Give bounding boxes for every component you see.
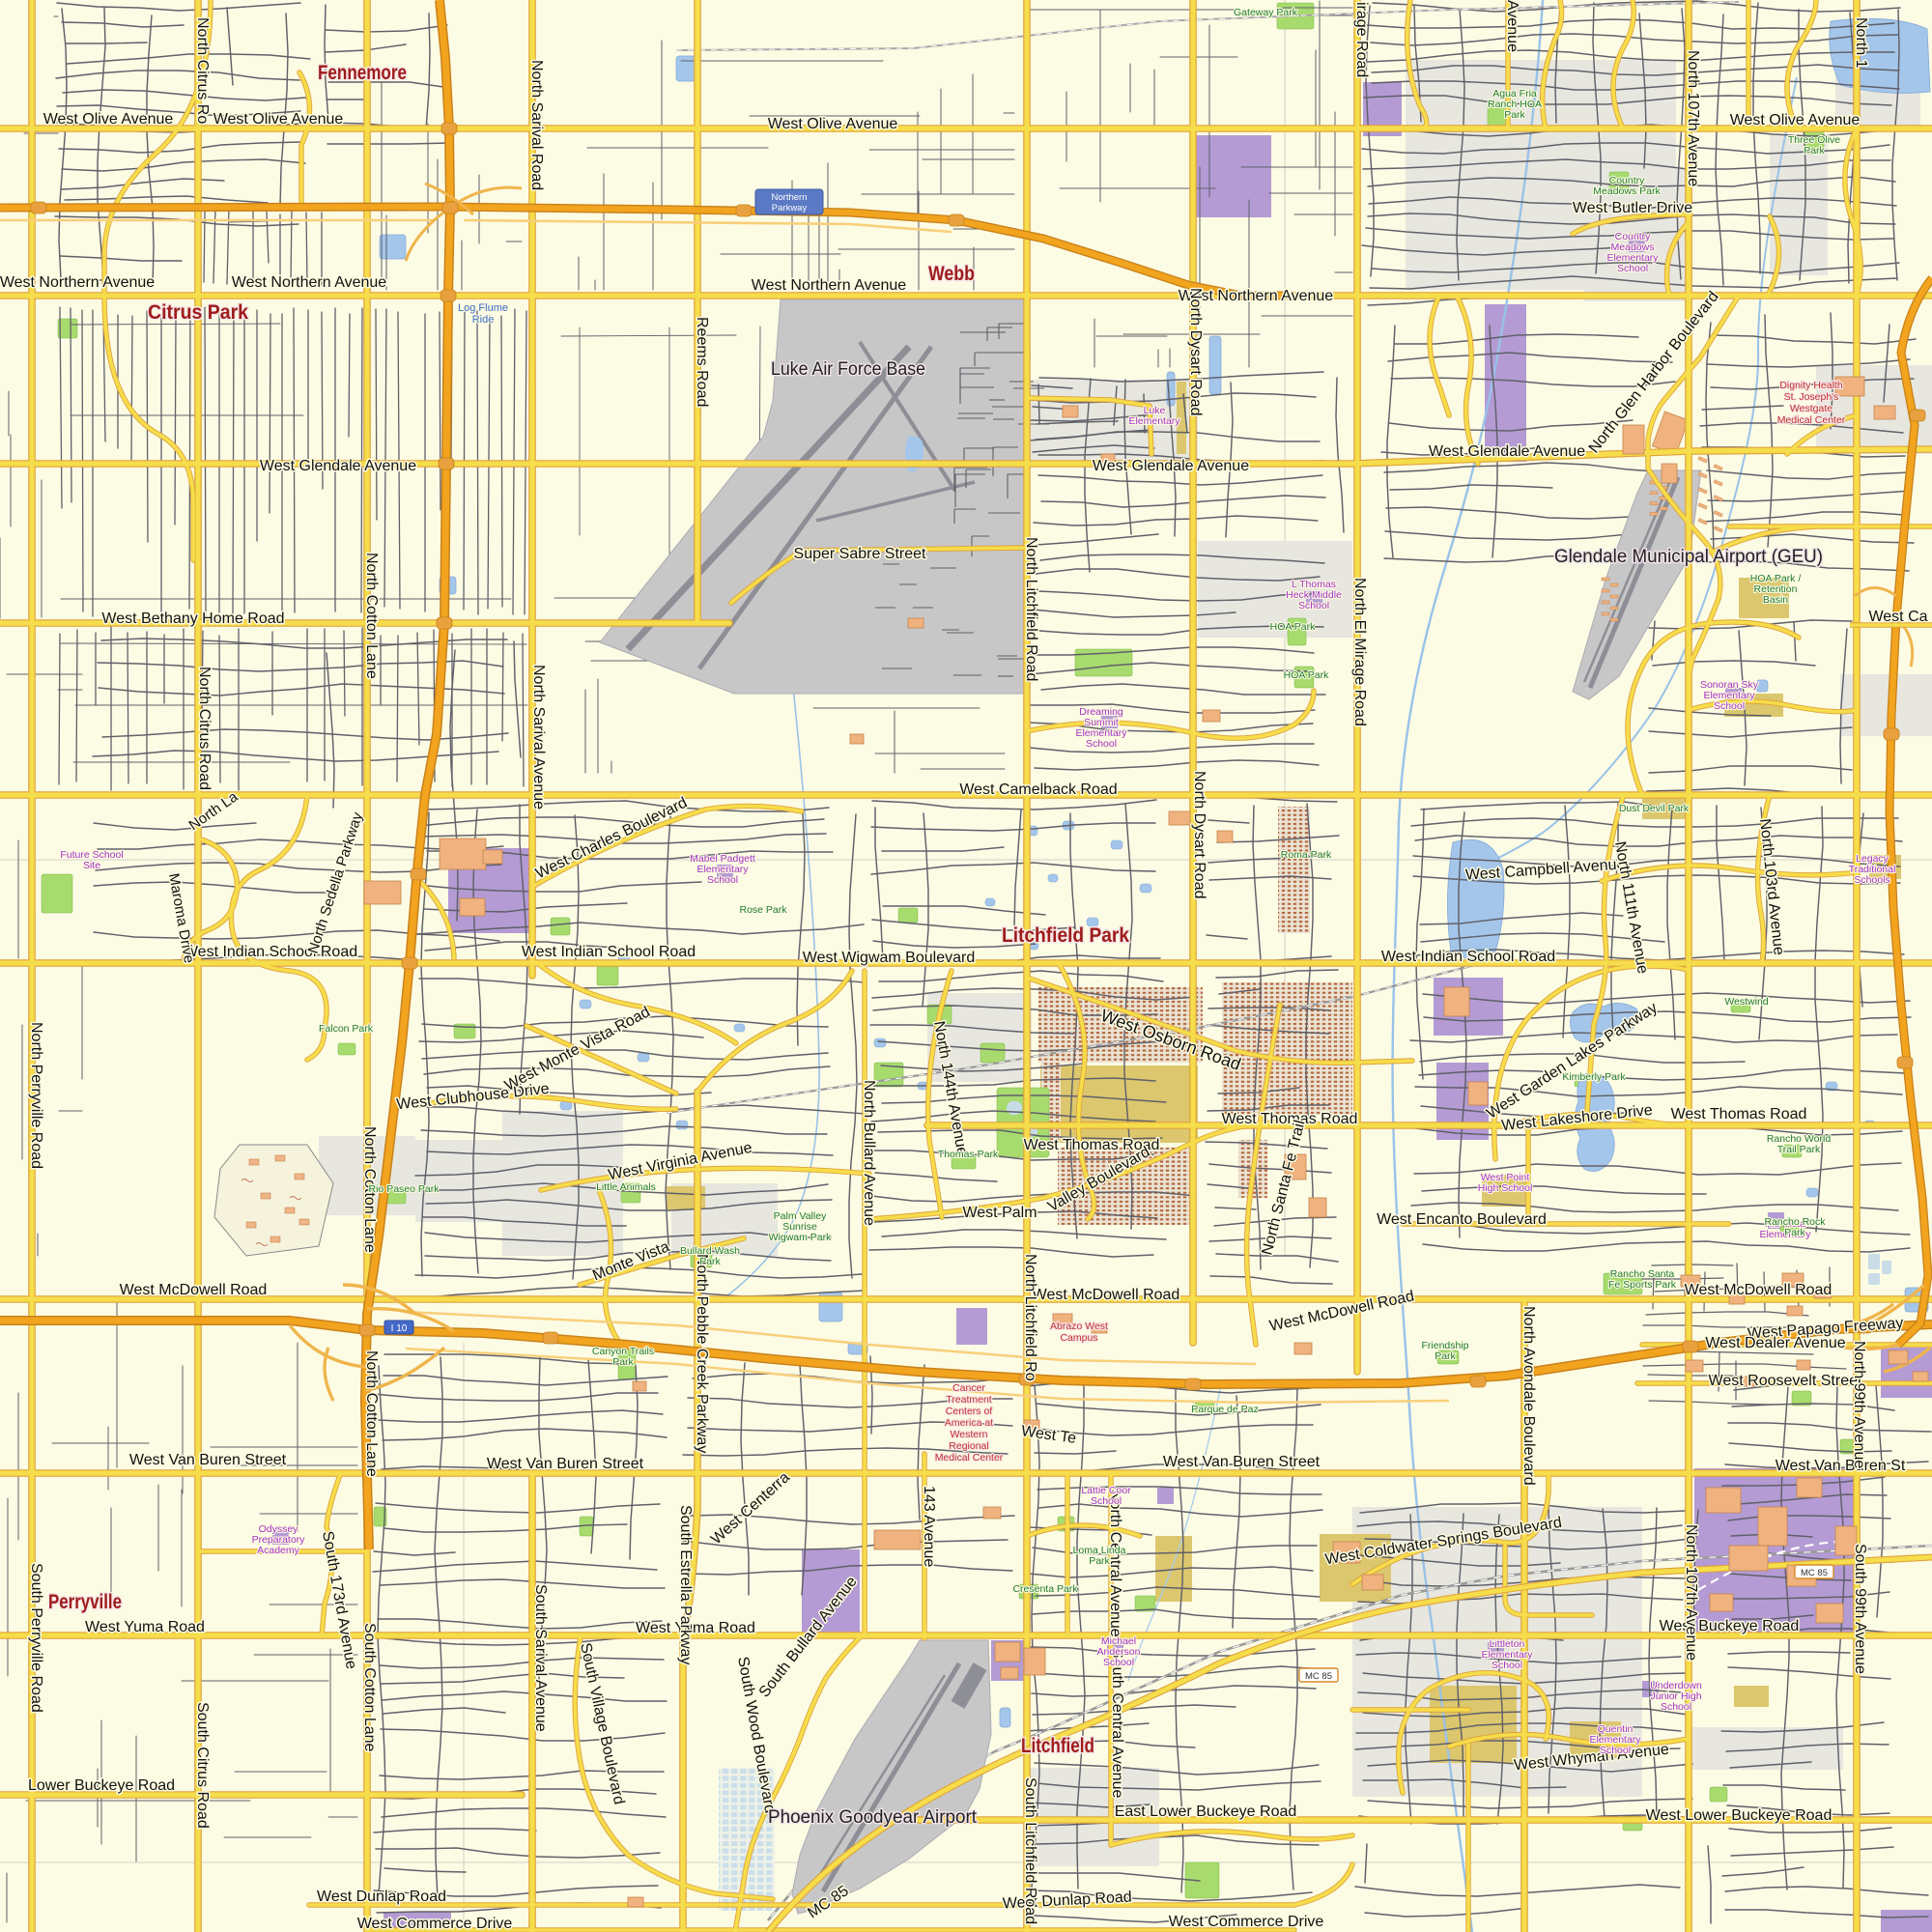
svg-text:Park: Park	[612, 1356, 634, 1368]
svg-text:West Northern Avenue: West Northern Avenue	[752, 277, 906, 294]
svg-text:West Encanto Boulevard: West Encanto Boulevard	[1377, 1211, 1547, 1228]
svg-text:West Commerce Drive: West Commerce Drive	[357, 1916, 513, 1932]
svg-text:Perryville: Perryville	[48, 1591, 122, 1613]
svg-text:Meadows Park: Meadows Park	[1593, 185, 1661, 197]
svg-text:South 99th Avenue: South 99th Avenue	[1852, 1544, 1868, 1674]
svg-text:Thomas Park: Thomas Park	[938, 1149, 999, 1160]
svg-text:Abrazo West: Abrazo West	[1050, 1321, 1108, 1332]
svg-text:Medical Center: Medical Center	[1777, 414, 1846, 426]
svg-text:West Van Buren Street: West Van Buren Street	[1163, 1454, 1321, 1470]
svg-text:School: School	[1617, 263, 1648, 274]
svg-text:Fennemore: Fennemore	[318, 62, 407, 84]
svg-text:West Van Buren Street: West Van Buren Street	[129, 1452, 287, 1468]
svg-text:School: School	[1492, 1660, 1522, 1671]
svg-text:Kimberly Park: Kimberly Park	[1562, 1071, 1626, 1083]
svg-text:Phoenix Goodyear Airport: Phoenix Goodyear Airport	[768, 1807, 978, 1828]
svg-text:North Bullard Avenue: North Bullard Avenue	[861, 1080, 877, 1226]
svg-text:Centers of: Centers of	[946, 1406, 993, 1417]
svg-text:South Sarival Avenue: South Sarival Avenue	[532, 1584, 549, 1732]
svg-text:Webb: Webb	[928, 263, 975, 285]
svg-text:West Bethany Home Road: West Bethany Home Road	[101, 611, 284, 627]
svg-text:I 10: I 10	[391, 1323, 408, 1334]
svg-text:West Glendale Avenue: West Glendale Avenue	[1093, 458, 1249, 474]
svg-text:North Litchfield Ro: North Litchfield Ro	[1022, 1254, 1038, 1381]
svg-text:West Camelback Road: West Camelback Road	[959, 781, 1117, 798]
svg-text:Dignity Health: Dignity Health	[1779, 380, 1843, 391]
svg-text:Super Sabre Street: Super Sabre Street	[794, 546, 927, 562]
svg-text:West Van Buren Street: West Van Buren Street	[487, 1456, 644, 1472]
svg-text:West Thomas Road: West Thomas Road	[1671, 1106, 1807, 1122]
svg-text:Lower Buckeye Road: Lower Buckeye Road	[28, 1777, 175, 1794]
svg-text:Glendale Municipal Airport (GE: Glendale Municipal Airport (GEU)	[1554, 547, 1823, 567]
svg-text:West Butler Drive: West Butler Drive	[1573, 200, 1692, 216]
svg-text:School: School	[1661, 1701, 1691, 1713]
svg-text:Academy: Academy	[257, 1545, 300, 1556]
svg-text:East Lower Buckeye Road: East Lower Buckeye Road	[1115, 1804, 1297, 1820]
svg-text:West Olive Avenue: West Olive Avenue	[213, 111, 344, 128]
svg-text:West McDowell Road: West McDowell Road	[1033, 1287, 1180, 1303]
svg-text:School: School	[1086, 738, 1117, 750]
svg-text:West Northern Avenue: West Northern Avenue	[0, 274, 155, 291]
svg-text:North 99th Avenue: North 99th Avenue	[1851, 1341, 1867, 1468]
svg-text:Ride: Ride	[472, 314, 495, 326]
svg-text:Westwind: Westwind	[1724, 996, 1768, 1008]
svg-text:Fe Sports Park: Fe Sports Park	[1608, 1279, 1677, 1291]
svg-text:South Estrella Parkway: South Estrella Parkway	[677, 1505, 694, 1664]
svg-text:West Wigwam Boulevard: West Wigwam Boulevard	[803, 950, 975, 966]
svg-text:Park: Park	[1504, 109, 1525, 121]
svg-text:Northern: Northern	[772, 192, 808, 203]
svg-text:West Ca: West Ca	[1868, 609, 1927, 625]
svg-text:West Yuma Road: West Yuma Road	[85, 1619, 205, 1635]
svg-text:North El Mirage Road: North El Mirage Road	[1351, 578, 1368, 726]
svg-text:School: School	[1600, 1745, 1631, 1756]
svg-text:Gateway Park: Gateway Park	[1234, 7, 1298, 18]
svg-text:School: School	[1091, 1495, 1122, 1507]
svg-text:North Citrus Ro: North Citrus Ro	[194, 17, 211, 124]
svg-text:Parkway: Parkway	[772, 203, 808, 213]
svg-text:West McDowell Road: West McDowell Road	[120, 1282, 268, 1298]
svg-text:West Indian School Road: West Indian School Road	[522, 944, 696, 960]
svg-text:Park: Park	[699, 1256, 721, 1267]
svg-text:Medical Center: Medical Center	[935, 1452, 1004, 1463]
svg-text:MC 85: MC 85	[1801, 1568, 1828, 1578]
svg-text:North Citrus Road: North Citrus Road	[196, 667, 213, 790]
svg-text:North Dysart Road: North Dysart Road	[1187, 288, 1204, 416]
svg-text:irage Road: irage Road	[1353, 2, 1370, 77]
svg-text:North Avondale Boulevard: North Avondale Boulevard	[1520, 1306, 1537, 1486]
svg-text:Roma Park: Roma Park	[1281, 849, 1332, 861]
svg-text:Schools: Schools	[1854, 874, 1889, 886]
svg-text:School: School	[1103, 1657, 1134, 1668]
svg-text:Park: Park	[1804, 145, 1825, 156]
svg-text:School: School	[707, 874, 738, 886]
svg-text:Reems Road: Reems Road	[694, 317, 710, 407]
svg-text:West Dunlap Road: West Dunlap Road	[317, 1889, 446, 1905]
svg-text:West Olive Avenue: West Olive Avenue	[768, 116, 898, 132]
svg-text:Park: Park	[1089, 1555, 1110, 1567]
svg-text:Citrus Park: Citrus Park	[148, 301, 248, 324]
svg-text:Wigwam Park: Wigwam Park	[769, 1232, 833, 1243]
svg-text:West Northern Avenue: West Northern Avenue	[232, 274, 386, 291]
svg-text:North Sarival Avenue: North Sarival Avenue	[530, 665, 547, 810]
svg-text:HOA Park: HOA Park	[1284, 669, 1329, 681]
svg-text:North Perryville Road: North Perryville Road	[28, 1022, 44, 1169]
svg-text:West Yuma Road: West Yuma Road	[636, 1620, 755, 1636]
svg-text:Log Flume: Log Flume	[458, 302, 508, 314]
svg-text:North Dysart Road: North Dysart Road	[1191, 771, 1207, 899]
svg-text:West Lower Buckeye Road: West Lower Buckeye Road	[1646, 1807, 1833, 1824]
svg-text:West Olive Avenue: West Olive Avenue	[1730, 112, 1861, 128]
svg-text:North 107th Avenue: North 107th Avenue	[1685, 50, 1701, 186]
svg-text:West Indian School Road: West Indian School Road	[1381, 949, 1555, 965]
svg-text:Litchfield Park: Litchfield Park	[1002, 924, 1129, 947]
svg-text:West Buckeye Road: West Buckeye Road	[1660, 1618, 1800, 1634]
svg-text:Basin: Basin	[1763, 594, 1788, 606]
svg-text:South Cotton Lane: South Cotton Lane	[361, 1623, 378, 1752]
svg-text:Parque de Paz: Parque de Paz	[1191, 1404, 1258, 1415]
svg-text:West Olive Avenue: West Olive Avenue	[43, 111, 174, 128]
svg-text:West Palm: West Palm	[962, 1205, 1037, 1221]
svg-text:Luke Air Force Base: Luke Air Force Base	[771, 359, 925, 380]
svg-text:North 107th Avenue: North 107th Avenue	[1683, 1524, 1699, 1661]
svg-text:West Glendale Avenue: West Glendale Avenue	[1429, 443, 1585, 460]
svg-text:HOA Park: HOA Park	[1270, 621, 1316, 633]
svg-text:North Cotton Lane: North Cotton Lane	[363, 1350, 380, 1477]
svg-text:North 1: North 1	[1853, 17, 1869, 69]
svg-text:South Litchfield Road: South Litchfield Road	[1022, 1777, 1038, 1924]
svg-text:Falcon Park: Falcon Park	[319, 1023, 374, 1035]
svg-text:West Thomas Road: West Thomas Road	[1222, 1111, 1358, 1127]
svg-text:North Sarival Road: North Sarival Road	[528, 60, 545, 190]
svg-text:Regional: Regional	[949, 1440, 988, 1452]
svg-text:St. Joseph's: St. Joseph's	[1784, 391, 1839, 403]
svg-text:143 Avenue: 143 Avenue	[921, 1486, 937, 1567]
svg-text:North Pebble Creek Parkway: North Pebble Creek Parkway	[694, 1254, 710, 1453]
svg-text:Elementary: Elementary	[1128, 415, 1180, 427]
svg-text:West Indian School Road: West Indian School Road	[184, 944, 357, 960]
svg-text:Site: Site	[83, 860, 100, 871]
svg-text:Avenue: Avenue	[1504, 0, 1520, 52]
svg-text:Cresenta Park: Cresenta Park	[1012, 1583, 1078, 1595]
svg-text:Cancer: Cancer	[952, 1382, 985, 1394]
svg-text:West Dealer Avenue: West Dealer Avenue	[1705, 1335, 1845, 1351]
svg-text:South Central Avenue: South Central Avenue	[1109, 1648, 1125, 1798]
svg-text:Trail Park: Trail Park	[1777, 1144, 1821, 1155]
svg-text:West Glendale Avenue: West Glendale Avenue	[260, 458, 416, 474]
svg-text:Rio Paseo Park: Rio Paseo Park	[369, 1183, 440, 1195]
svg-text:Litchfield: Litchfield	[1021, 1735, 1094, 1757]
svg-text:South Perryville Road: South Perryville Road	[28, 1563, 44, 1713]
svg-text:School: School	[1714, 700, 1745, 712]
svg-text:North Cotton Lane: North Cotton Lane	[363, 553, 380, 679]
svg-text:Treatment: Treatment	[946, 1394, 992, 1406]
svg-text:Park: Park	[1784, 1227, 1805, 1238]
svg-text:School: School	[1298, 600, 1329, 611]
svg-text:High School: High School	[1478, 1182, 1533, 1194]
svg-text:West Roosevelt Street: West Roosevelt Street	[1709, 1373, 1862, 1389]
svg-text:West McDowell Road: West McDowell Road	[1685, 1282, 1833, 1298]
svg-text:West Van Buren St: West Van Buren St	[1776, 1458, 1906, 1474]
svg-text:West Commerce Drive: West Commerce Drive	[1169, 1914, 1324, 1930]
svg-text:South Citrus Road: South Citrus Road	[194, 1702, 211, 1829]
svg-text:Park: Park	[1435, 1350, 1456, 1362]
svg-text:Little Animals: Little Animals	[596, 1181, 656, 1193]
svg-text:MC 85: MC 85	[1305, 1671, 1332, 1682]
svg-text:Western: Western	[951, 1429, 988, 1440]
svg-text:Westgate: Westgate	[1790, 403, 1833, 414]
svg-text:Campus: Campus	[1060, 1332, 1097, 1344]
svg-text:North Litchfield Road: North Litchfield Road	[1023, 537, 1039, 681]
svg-text:Rose Park: Rose Park	[739, 904, 787, 916]
svg-text:Dust Devil Park: Dust Devil Park	[1619, 803, 1690, 814]
svg-text:America at: America at	[945, 1417, 993, 1429]
